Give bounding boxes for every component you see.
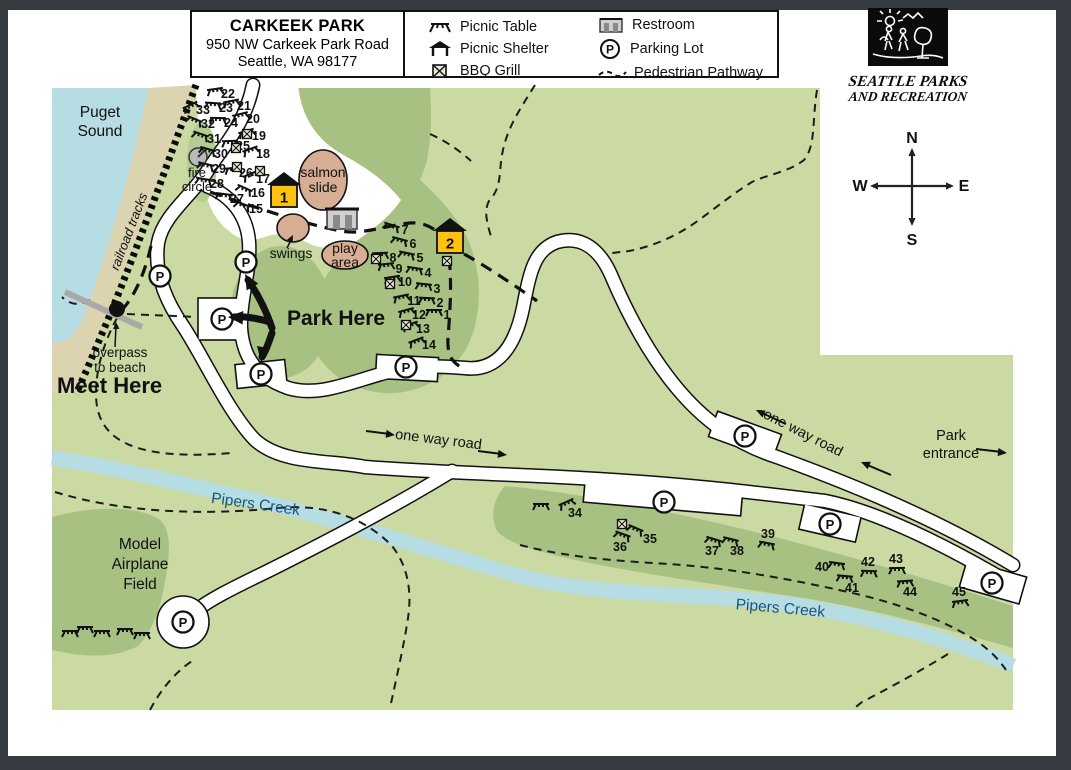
svg-text:24: 24 — [224, 116, 238, 130]
parking-lot-icon: P — [173, 612, 194, 633]
parking-lot-icon: P — [251, 364, 272, 385]
svg-text:3: 3 — [434, 282, 441, 296]
svg-text:2: 2 — [446, 236, 454, 253]
park-title: CARKEEK PARK — [192, 17, 403, 36]
svg-text:P: P — [988, 576, 997, 591]
svg-text:18: 18 — [256, 147, 270, 161]
bbq-grill-icon — [256, 167, 265, 176]
bbq-grill-icon — [618, 520, 627, 529]
svg-text:44: 44 — [903, 585, 917, 599]
label-swings: swings — [270, 245, 313, 261]
svg-text:2: 2 — [437, 296, 444, 310]
bbq-grill-icon — [443, 257, 452, 266]
svg-text:15: 15 — [249, 202, 263, 216]
svg-text:P: P — [257, 367, 266, 382]
svg-text:1: 1 — [280, 190, 288, 207]
label-meet-here: Meet Here — [57, 373, 162, 398]
legend-item-pathway: Pedestrian Pathway — [597, 62, 763, 84]
legend: Picnic Table Picnic Shelter BBQ Grill — [403, 10, 779, 78]
title-box: CARKEEK PARK 950 NW Carkeek Park Road Se… — [190, 10, 405, 78]
legend-label: Parking Lot — [630, 41, 703, 57]
restroom-icon — [597, 16, 625, 34]
bbq-grill-icon — [232, 144, 241, 153]
legend-item-picnic-table: Picnic Table — [427, 16, 537, 38]
svg-text:38: 38 — [730, 544, 744, 558]
parking-lot-icon: P — [236, 252, 257, 273]
svg-text:41: 41 — [845, 581, 859, 595]
svg-text:22: 22 — [221, 87, 235, 101]
meet-here-dot — [109, 301, 125, 317]
park-address-line2: Seattle, WA 98177 — [192, 54, 403, 70]
compass-e: E — [959, 178, 970, 195]
svg-text:39: 39 — [761, 527, 775, 541]
svg-text:P: P — [218, 312, 227, 327]
bbq-grill-icon — [243, 130, 252, 139]
svg-text:14: 14 — [422, 338, 436, 352]
svg-text:20: 20 — [246, 112, 260, 126]
parking-lot-icon: P — [212, 309, 233, 330]
legend-item-bbq-grill: BBQ Grill — [427, 60, 520, 82]
svg-text:37: 37 — [705, 544, 719, 558]
svg-text:P: P — [741, 429, 750, 444]
legend-label: BBQ Grill — [460, 63, 520, 79]
legend-label: Restroom — [632, 17, 695, 33]
svg-text:4: 4 — [425, 266, 432, 280]
swings-area — [277, 214, 309, 242]
svg-text:40: 40 — [815, 560, 829, 574]
legend-label: Picnic Shelter — [460, 41, 549, 57]
compass-w: W — [852, 178, 868, 195]
svg-text:42: 42 — [861, 555, 875, 569]
legend-item-picnic-shelter: Picnic Shelter — [427, 38, 549, 60]
bbq-grill-icon — [427, 63, 453, 79]
compass-s: S — [907, 232, 918, 249]
svg-text:11: 11 — [407, 294, 420, 308]
seattle-parks-logo: SEATTLE PARKS AND RECREATION — [843, 6, 973, 101]
legend-item-parking: P Parking Lot — [597, 38, 703, 60]
svg-text:6: 6 — [410, 237, 417, 251]
picnic-shelter-icon — [427, 40, 453, 58]
svg-text:31: 31 — [207, 132, 221, 146]
compass-n: N — [906, 130, 918, 147]
logo-text-line1: SEATTLE PARKS — [842, 74, 974, 90]
svg-text:12: 12 — [412, 308, 426, 322]
svg-text:P: P — [179, 615, 188, 630]
parking-lot-icon: P — [396, 357, 417, 378]
svg-text:P: P — [242, 255, 251, 270]
svg-text:5: 5 — [417, 251, 424, 265]
svg-text:7: 7 — [402, 223, 409, 237]
svg-text:10: 10 — [398, 275, 412, 289]
park-map: 3332313029282723242526222120191817161576… — [0, 0, 1071, 770]
restroom-icon — [325, 209, 359, 229]
parking-lot-icon: P — [735, 426, 756, 447]
parking-lot-icon: P — [820, 514, 841, 535]
svg-text:P: P — [826, 517, 835, 532]
picnic-table-icon — [427, 19, 453, 35]
svg-text:P: P — [402, 360, 411, 375]
pedestrian-pathway-icon — [597, 66, 627, 80]
svg-text:9: 9 — [396, 262, 403, 276]
svg-text:36: 36 — [613, 540, 627, 554]
parking-lot-icon: P — [654, 492, 675, 513]
logo-text-line2: AND RECREATION — [842, 90, 974, 104]
svg-text:P: P — [606, 43, 614, 57]
svg-text:43: 43 — [889, 552, 903, 566]
svg-text:45: 45 — [952, 585, 966, 599]
svg-text:19: 19 — [252, 129, 266, 143]
bbq-grill-icon — [386, 280, 395, 289]
bbq-grill-icon — [372, 255, 381, 264]
svg-text:30: 30 — [214, 147, 228, 161]
svg-text:29: 29 — [212, 162, 226, 176]
svg-text:1: 1 — [444, 308, 451, 322]
label-overpass: overpassto beach — [93, 345, 148, 375]
label-park-here: Park Here — [287, 307, 385, 330]
svg-text:13: 13 — [416, 322, 430, 336]
bbq-grill-icon — [402, 321, 411, 330]
label-play-area: playarea — [331, 240, 359, 270]
legend-item-restroom: Restroom — [597, 14, 695, 36]
svg-text:35: 35 — [643, 532, 657, 546]
carkeek-park-map-page: 3332313029282723242526222120191817161576… — [0, 0, 1071, 770]
parking-lot-icon: P — [150, 266, 171, 287]
svg-text:16: 16 — [251, 186, 265, 200]
parking-lot-icon: P — [982, 573, 1003, 594]
legend-label: Pedestrian Pathway — [634, 65, 763, 81]
legend-label: Picnic Table — [460, 19, 537, 35]
svg-text:21: 21 — [237, 99, 251, 113]
svg-text:P: P — [156, 269, 165, 284]
parking-lot-icon: P — [597, 38, 623, 60]
bbq-grill-icon — [233, 163, 242, 172]
svg-text:33: 33 — [196, 103, 210, 117]
logo-art — [843, 6, 973, 68]
park-address-line1: 950 NW Carkeek Park Road — [192, 37, 403, 53]
svg-text:34: 34 — [568, 506, 582, 520]
svg-text:P: P — [660, 495, 669, 510]
